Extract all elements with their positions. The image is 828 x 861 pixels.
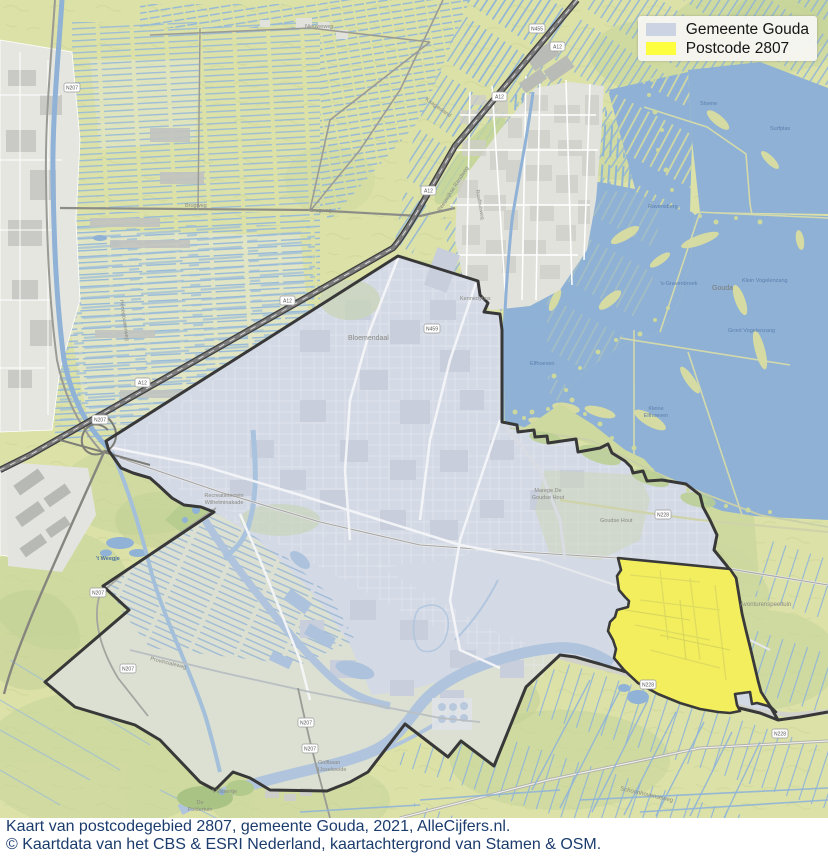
svg-text:N455: N455 [531,27,543,33]
svg-text:Golfbaan: Golfbaan [318,760,340,766]
svg-text:'t Vissertje: 't Vissertje [212,789,237,795]
svg-text:Kennedybos: Kennedybos [460,296,491,302]
svg-text:Goudse Hout: Goudse Hout [532,495,565,501]
svg-text:Brugweg: Brugweg [185,203,207,209]
svg-text:Poldertuin: Poldertuin [188,807,213,813]
svg-text:Goudse Hout: Goudse Hout [600,518,633,524]
svg-text:Kleine: Kleine [648,406,663,412]
svg-text:N459: N459 [426,327,438,333]
svg-text:N228: N228 [657,513,669,519]
svg-text:N228: N228 [774,732,786,738]
svg-text:A12: A12 [283,299,292,305]
svg-text:Groot Vogelenzang: Groot Vogelenzang [728,328,775,334]
svg-text:A12: A12 [424,189,433,195]
svg-text:Gouda: Gouda [712,285,733,292]
svg-text:Elfhoeven: Elfhoeven [644,413,668,419]
svg-text:N207: N207 [304,747,316,753]
svg-text:A12: A12 [553,45,562,51]
svg-text:N207: N207 [300,721,312,727]
svg-text:N207: N207 [66,86,78,92]
svg-text:Brugweg: Brugweg [310,208,332,214]
svg-text:N207: N207 [122,667,134,673]
svg-text:De: De [196,800,203,806]
svg-text:Klein Vogelenzang: Klein Vogelenzang [742,278,788,284]
svg-text:Nieuweweg: Nieuweweg [305,24,333,30]
svg-text:Bloemendaal: Bloemendaal [348,335,389,342]
svg-text:'s-Gravenbroek: 's-Gravenbroek [660,281,698,287]
svg-text:Marege De: Marege De [534,488,561,494]
svg-text:N228: N228 [642,683,654,689]
svg-text:A12: A12 [138,381,147,387]
svg-text:'t Weegje: 't Weegje [96,556,120,562]
svg-text:Ravensberg: Ravensberg [648,204,678,210]
svg-text:IJsselweide: IJsselweide [318,767,346,773]
svg-text:Wilhelminakade: Wilhelminakade [205,500,244,506]
svg-text:N207: N207 [94,418,106,424]
svg-text:Elfhoeven: Elfhoeven [530,361,554,367]
svg-text:A12: A12 [495,95,504,101]
svg-text:Surfplas: Surfplas [770,126,790,132]
svg-text:N207: N207 [92,591,104,597]
svg-text:Recreatieterrein: Recreatieterrein [204,493,243,499]
svg-text:Avonturenspeeltuin: Avonturenspeeltuin [740,602,791,608]
svg-text:Sloene: Sloene [700,101,717,107]
